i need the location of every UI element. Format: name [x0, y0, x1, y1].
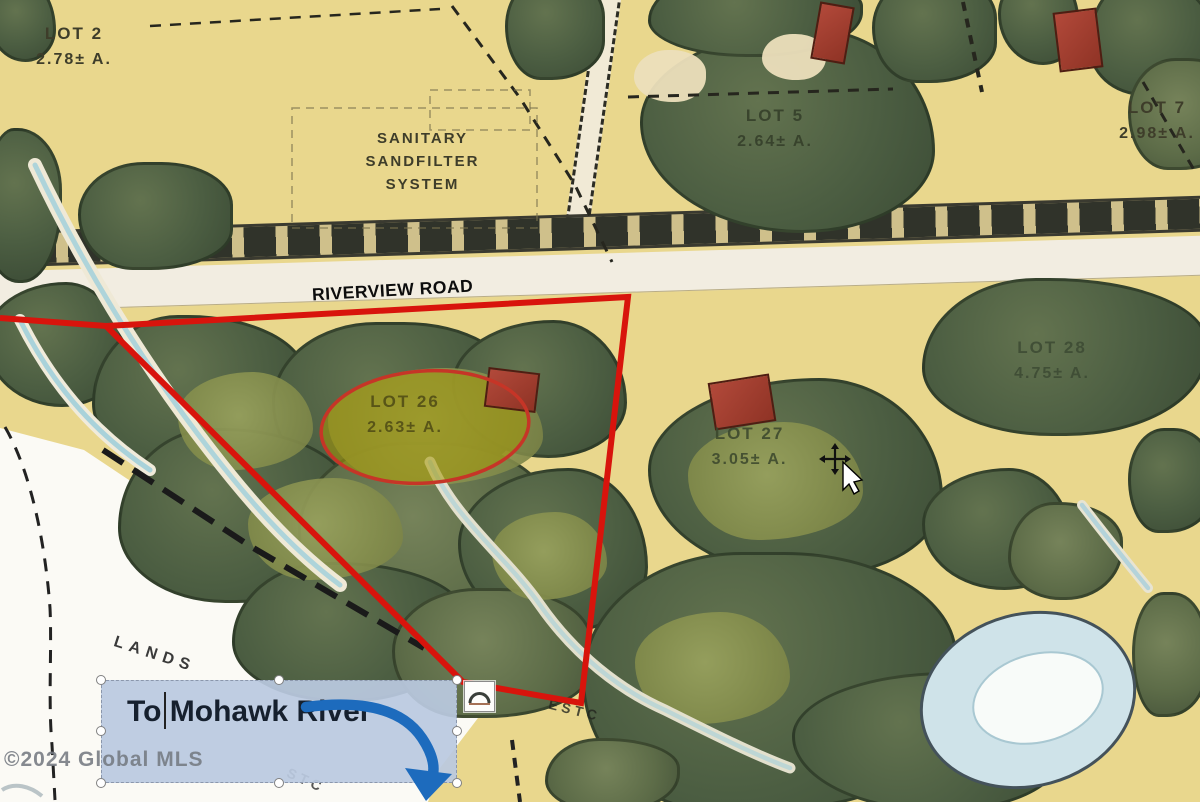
selection-handle-mid-left[interactable] [96, 726, 106, 736]
lot-5-name: LOT 5 [700, 106, 850, 126]
selection-handle-bottom-center[interactable] [274, 778, 284, 788]
selection-handle-bottom-left[interactable] [96, 778, 106, 788]
lot-2-acreage: 2.78± A. [8, 51, 140, 69]
lot-7-acreage: 2.98± A. [1082, 125, 1200, 143]
text-caret [164, 692, 166, 729]
lot-boundary-dashed [512, 740, 520, 802]
sanitary-line-2: SANDFILTER [330, 153, 515, 170]
global-mls-watermark: ©2024 Global MLS [4, 748, 204, 772]
plat-map-canvas: LOT 2 2.78± A. SANITARY SANDFILTER SYSTE… [0, 0, 1200, 802]
meadow-patch [635, 612, 790, 724]
clearing-patch [634, 50, 706, 102]
lot-5-acreage: 2.64± A. [700, 133, 850, 151]
tree-cluster [545, 738, 680, 802]
lot-7-name: LOT 7 [1082, 98, 1200, 118]
tree-cluster [1132, 592, 1200, 717]
selection-handle-top-left[interactable] [96, 675, 106, 685]
lot-2-name: LOT 2 [8, 24, 140, 44]
lot-28-acreage: 4.75± A. [972, 365, 1132, 383]
sanitary-sandfilter-label: SANITARY SANDFILTER SYSTEM [330, 124, 515, 193]
sanitary-line-3: SYSTEM [330, 176, 515, 193]
house-symbol [484, 367, 540, 413]
selection-handle-mid-right[interactable] [452, 726, 462, 736]
tree-cluster [78, 162, 233, 270]
lot-26-name: LOT 26 [330, 392, 480, 412]
tree-cluster [505, 0, 605, 80]
house-symbol [708, 373, 777, 430]
lot-28-label: LOT 28 4.75± A. [972, 338, 1132, 383]
lot-26-label: LOT 26 2.63± A. [330, 392, 480, 437]
selection-handle-bottom-right[interactable] [452, 778, 462, 788]
arc-shape-icon[interactable] [464, 681, 495, 712]
lot-27-name: LOT 27 [672, 424, 827, 444]
lot-27-label: LOT 27 3.05± A. [672, 424, 827, 469]
lot-boundary-dashed [150, 9, 440, 26]
lot-28-name: LOT 28 [972, 338, 1132, 358]
lot-26-acreage: 2.63± A. [330, 419, 480, 437]
lot-5-label: LOT 5 2.64± A. [700, 106, 850, 151]
sanitary-line-1: SANITARY [330, 130, 515, 147]
meadow-patch [492, 512, 607, 600]
arch-glyph [465, 682, 494, 711]
meadow-patch [178, 372, 313, 470]
tree-cluster [1008, 502, 1123, 600]
house-symbol [1053, 8, 1104, 73]
lot-2-label: LOT 2 2.78± A. [8, 24, 140, 69]
lot-7-label: LOT 7 2.98± A. [1082, 98, 1200, 143]
meadow-patch [248, 478, 403, 580]
tree-cluster [1128, 428, 1200, 533]
tree-cluster [872, 0, 997, 83]
lot-27-acreage: 3.05± A. [672, 451, 827, 469]
selection-handle-top-center[interactable] [274, 675, 284, 685]
selection-handle-top-right[interactable] [452, 675, 462, 685]
